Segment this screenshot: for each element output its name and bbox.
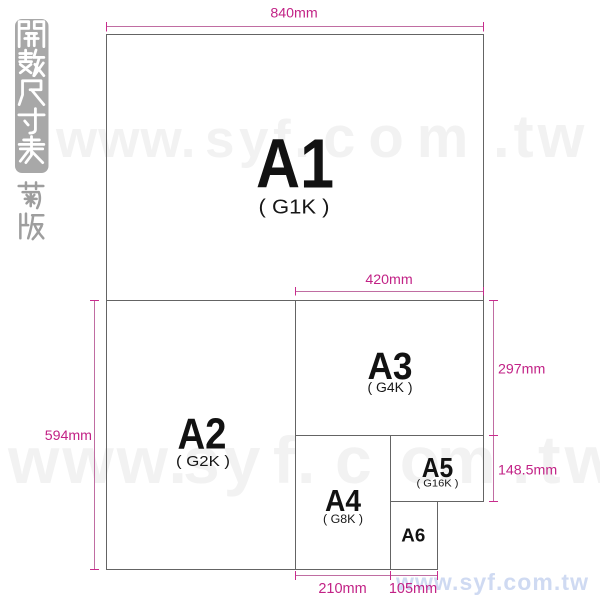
svg-text:tw: tw	[538, 422, 600, 498]
svg-text:.: .	[512, 423, 530, 497]
svg-text:420mm: 420mm	[365, 272, 412, 288]
svg-text:840mm: 840mm	[270, 6, 317, 22]
svg-text:A1: A1	[256, 125, 334, 203]
svg-text:.tw: .tw	[493, 103, 588, 170]
svg-text:( G1K ): ( G1K )	[259, 197, 330, 219]
svg-text:www.: www.	[7, 423, 190, 497]
svg-text:105mm: 105mm	[389, 581, 437, 597]
svg-text:A6: A6	[401, 525, 425, 546]
svg-text:210mm: 210mm	[318, 581, 366, 597]
svg-text:A4: A4	[325, 484, 361, 518]
svg-text:A2: A2	[178, 410, 227, 459]
svg-text:148.5mm: 148.5mm	[498, 463, 557, 479]
svg-text:www.: www.	[55, 110, 196, 169]
svg-text:( G16K ): ( G16K )	[417, 477, 459, 489]
svg-text:( G4K ): ( G4K )	[368, 380, 413, 395]
svg-text:594mm: 594mm	[45, 428, 92, 444]
svg-text:( G2K ): ( G2K )	[176, 453, 230, 470]
svg-text:297mm: 297mm	[498, 362, 545, 378]
svg-text:( G8K ): ( G8K )	[323, 514, 363, 526]
